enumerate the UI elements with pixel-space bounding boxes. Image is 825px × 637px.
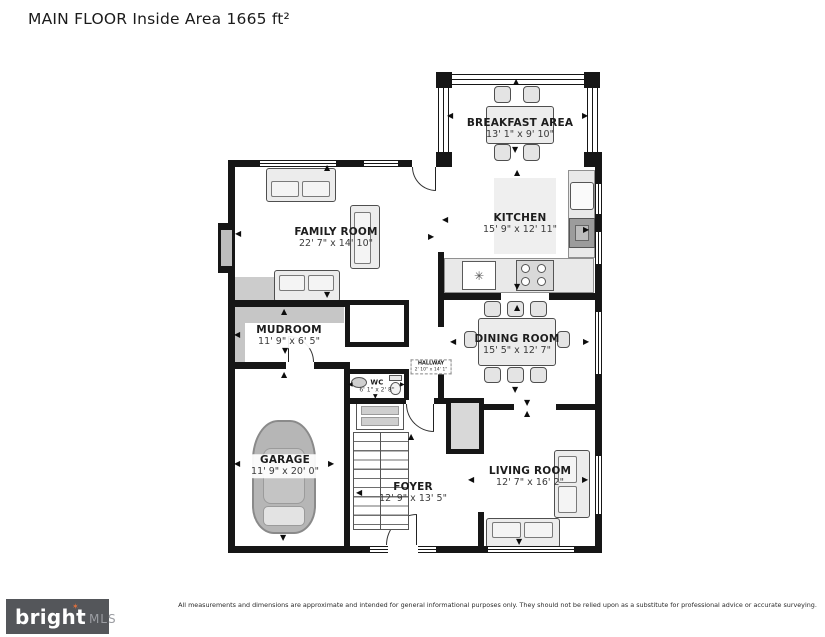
kitchen-sink: ✳ <box>462 261 496 290</box>
mudroom-builtins <box>234 307 344 323</box>
closet-wall <box>345 300 409 305</box>
fridge <box>570 182 594 210</box>
arrow-down-icon: ▼ <box>280 534 286 542</box>
wall-segment <box>436 72 452 88</box>
arrow-up-icon: ▲ <box>514 169 520 177</box>
burner-icon <box>521 264 530 273</box>
arrow-down-icon: ▼ <box>512 386 518 394</box>
room-label-family: FAMILY ROOM 22' 7" x 14' 10" <box>294 226 377 250</box>
arrow-up-icon: ▲ <box>514 304 520 312</box>
shelf <box>361 406 399 415</box>
burner-icon <box>537 277 546 286</box>
wall-segment <box>595 214 602 232</box>
shelf <box>361 417 399 426</box>
room-label-hallway: HALLWAY 2' 10" x 14' 1" <box>411 359 452 374</box>
arrow-up-icon: ▲ <box>281 371 287 379</box>
window <box>438 88 449 152</box>
wall-segment <box>228 160 235 223</box>
arrow-up-icon: ▲ <box>324 164 330 172</box>
wall-segment <box>484 404 514 410</box>
chair <box>494 86 511 103</box>
room-label-foyer: FOYER 12' 9" x 13' 5" <box>379 481 447 505</box>
dishwasher <box>569 218 595 248</box>
sofa-cushion <box>524 522 553 538</box>
wall-segment <box>228 362 286 369</box>
arrow-right-icon: ▶ <box>582 476 588 484</box>
wall-segment <box>595 152 602 184</box>
window <box>364 160 398 167</box>
closet-wall <box>345 300 350 347</box>
chair <box>484 367 501 383</box>
arrow-right-icon: ▶ <box>428 233 434 241</box>
fireplace-inner <box>221 230 232 266</box>
window-sidelight <box>418 546 436 553</box>
brightmls-logo: bright ✶ MLS <box>6 599 109 634</box>
wall-segment <box>228 300 350 307</box>
room-label-breakfast: BREAKFAST AREA 13' 1" x 9' 10" <box>467 117 573 141</box>
arrow-left-icon: ◀ <box>450 338 456 346</box>
window <box>595 456 602 514</box>
arrow-left-icon: ◀ <box>235 230 241 238</box>
arrow-left-icon: ◀ <box>234 331 240 339</box>
window <box>595 312 602 374</box>
wall-segment <box>443 293 501 300</box>
sink-icon: ✳ <box>474 269 484 283</box>
sofa-cushion <box>492 522 521 538</box>
sofa-cushion <box>302 181 330 197</box>
wall-segment <box>549 293 595 300</box>
burner-icon <box>537 264 546 273</box>
wall-segment <box>584 72 600 88</box>
wc-wall <box>345 369 409 374</box>
arrow-up-icon: ▲ <box>281 308 287 316</box>
window <box>587 88 598 152</box>
wall-segment <box>434 398 448 404</box>
room-label-mudroom: MUDROOM 11' 9" x 6' 5" <box>253 324 324 348</box>
foyer-shelf-closet <box>356 402 404 430</box>
arrow-left-icon: ◀ <box>442 216 448 224</box>
sofa <box>486 518 560 548</box>
wall-segment <box>595 514 602 553</box>
arrow-right-icon: ▶ <box>400 382 405 388</box>
arrow-up-icon: ▲ <box>524 410 530 418</box>
room-label-kitchen: KITCHEN 15' 9" x 12' 11" <box>483 212 557 236</box>
window-sidelight <box>370 546 388 553</box>
arrow-right-icon: ▶ <box>328 460 334 468</box>
arrow-left-icon: ◀ <box>348 382 353 388</box>
arrow-left-icon: ◀ <box>356 489 362 497</box>
sofa <box>266 168 336 202</box>
wall-segment <box>595 264 602 312</box>
page-title: MAIN FLOOR Inside Area 1665 ft² <box>28 10 290 28</box>
chair <box>523 144 540 161</box>
window <box>595 232 602 264</box>
arrow-up-icon: ▲ <box>408 433 414 441</box>
arrow-left-icon: ◀ <box>447 112 453 120</box>
sofa-cushion <box>308 275 334 291</box>
wall-segment <box>398 160 412 167</box>
room-label-living: LIVING ROOM 12' 7" x 16' 2" <box>489 465 571 489</box>
arrow-down-icon: ▼ <box>516 538 522 546</box>
logo-star-icon: ✶ <box>72 602 79 611</box>
car-window <box>263 506 305 526</box>
chair <box>494 144 511 161</box>
arrow-down-icon: ▼ <box>373 394 378 400</box>
chair <box>507 367 524 383</box>
closet-wall <box>404 300 409 347</box>
arrow-down-icon: ▼ <box>324 291 330 299</box>
arrow-up-icon: ▲ <box>513 78 519 86</box>
arrow-down-icon: ▼ <box>282 347 288 355</box>
arrow-left-icon: ◀ <box>468 476 474 484</box>
disclaimer-text: All measurements and dimensions are appr… <box>175 601 820 609</box>
stove <box>516 260 554 291</box>
door-arc <box>406 404 434 432</box>
arrow-down-icon: ▼ <box>514 283 520 291</box>
wall-segment <box>478 512 484 553</box>
arrow-down-icon: ▼ <box>512 146 518 154</box>
arrow-right-icon: ▶ <box>583 338 589 346</box>
wall-segment <box>228 273 235 553</box>
window <box>595 184 602 214</box>
wall-segment <box>556 404 602 410</box>
sofa-cushion <box>558 486 577 513</box>
wall-segment <box>595 374 602 456</box>
wall-segment <box>336 160 364 167</box>
chair <box>484 301 501 317</box>
room-label-wc: WC 6' 1" x 2' 8" <box>359 378 394 393</box>
coat-closet <box>446 398 484 454</box>
arrow-right-icon: ▶ <box>583 226 589 234</box>
logo-suffix-text: MLS <box>89 612 117 626</box>
floor-plan: MAIN FLOOR Inside Area 1665 ft² <box>0 0 825 637</box>
room-label-dining: DINING ROOM 15' 5" x 12' 7" <box>475 333 560 357</box>
closet-wall <box>345 342 409 347</box>
wall-segment <box>438 293 444 327</box>
wall-segment <box>436 152 452 167</box>
burner-icon <box>521 277 530 286</box>
arrow-down-icon: ▼ <box>524 399 530 407</box>
chair <box>530 367 547 383</box>
chair <box>523 86 540 103</box>
window <box>488 546 574 553</box>
chair <box>530 301 547 317</box>
door-arc <box>412 167 436 191</box>
room-label-garage: GARAGE 11' 9" x 20' 0" <box>248 454 322 478</box>
sofa-cushion <box>279 275 305 291</box>
arrow-left-icon: ◀ <box>234 460 240 468</box>
arrow-right-icon: ▶ <box>582 112 588 120</box>
sofa-cushion <box>271 181 299 197</box>
